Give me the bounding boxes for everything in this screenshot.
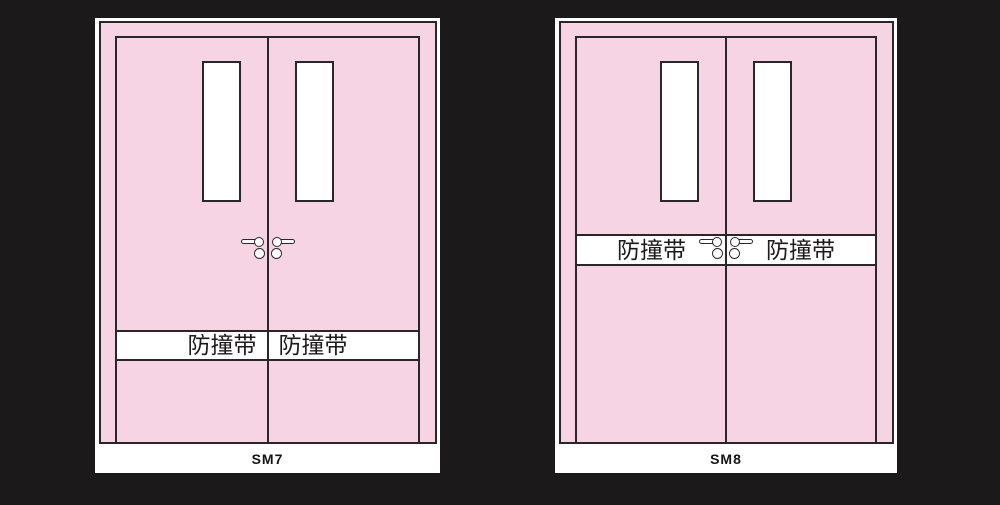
door-meeting-stile-line xyxy=(725,38,727,442)
figure-label-sm7: SM7 xyxy=(95,444,440,473)
door-lock-cylinder-left-icon xyxy=(712,248,723,259)
door-handle-rose-right-icon xyxy=(730,237,740,247)
door-handle-rose-left-icon xyxy=(254,237,264,247)
vision-panel-left xyxy=(202,61,241,202)
door-meeting-stile-line xyxy=(267,38,269,442)
door-diagram-sm7: 防撞带 防撞带 SM7 xyxy=(95,18,440,473)
figure-label-sm8: SM8 xyxy=(555,444,897,473)
bump-band-label-right: 防撞带 xyxy=(268,332,419,359)
door-lock-cylinder-left-icon xyxy=(254,248,265,259)
door-lock-cylinder-right-icon xyxy=(271,248,282,259)
door-handle-rose-left-icon xyxy=(712,237,722,247)
vision-panel-left xyxy=(660,61,699,202)
vision-panel-right xyxy=(753,61,792,202)
door-panels: 防撞带 防撞带 xyxy=(575,36,877,444)
door-lock-cylinder-right-icon xyxy=(729,248,740,259)
door-panels: 防撞带 防撞带 xyxy=(115,36,420,444)
door-diagram-sm8: 防撞带 防撞带 SM8 xyxy=(555,18,897,473)
vision-panel-right xyxy=(295,61,334,202)
canvas: 防撞带 防撞带 SM7 防撞带 防撞带 xyxy=(0,0,1000,505)
door-handle-rose-right-icon xyxy=(272,237,282,247)
bump-band-label-left: 防撞带 xyxy=(117,332,268,359)
